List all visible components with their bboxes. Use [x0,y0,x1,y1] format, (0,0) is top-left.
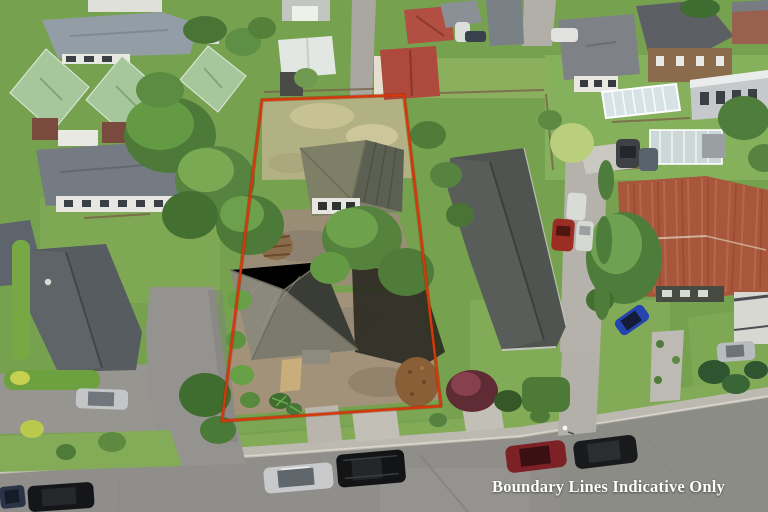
parked-car-white-drive [575,220,594,251]
satellite-dish [45,279,51,285]
parked-car-silver-street [76,388,129,410]
aerial-photo: Boundary Lines Indicative Only [0,0,768,512]
timber-ramp [280,358,302,392]
parked-car-navy [0,485,26,509]
aerial-photo-canvas [0,0,768,512]
porch-steps [302,350,330,364]
parked-car-black-ute [336,449,407,488]
grey-hip-house-topleft [42,12,198,58]
parked-car-black-1 [27,482,95,512]
parked-car-silver-se [716,341,755,363]
parked-car-darkblue-top [465,31,486,42]
parked-car-white-top2 [551,28,578,42]
parked-van-white [566,192,587,220]
mulch-pile [395,357,439,407]
cabbage-tree [294,68,318,88]
subject-back-house [300,140,404,216]
parked-car-grey-garden [616,139,640,168]
parked-car-red-drive [551,218,575,251]
white-house-bottomright [734,292,768,344]
parked-car-bluegrey-garden [639,148,658,171]
